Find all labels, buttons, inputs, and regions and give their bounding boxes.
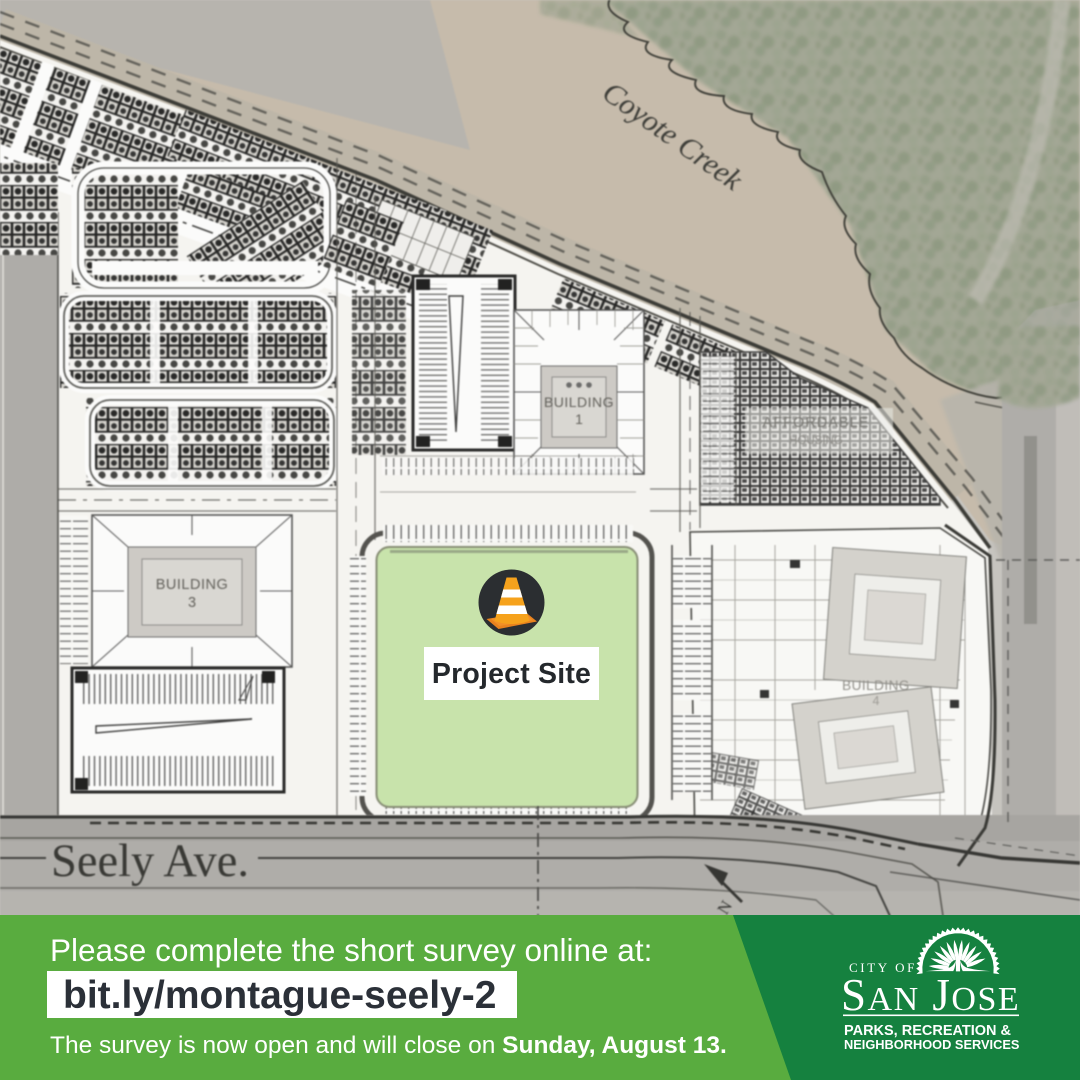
svg-text:NEIGHBORHOOD SERVICES: NEIGHBORHOOD SERVICES — [844, 1037, 1020, 1052]
svg-text:SAN JOSE: SAN JOSE — [841, 970, 1020, 1020]
svg-text:Project Site: Project Site — [432, 658, 591, 690]
